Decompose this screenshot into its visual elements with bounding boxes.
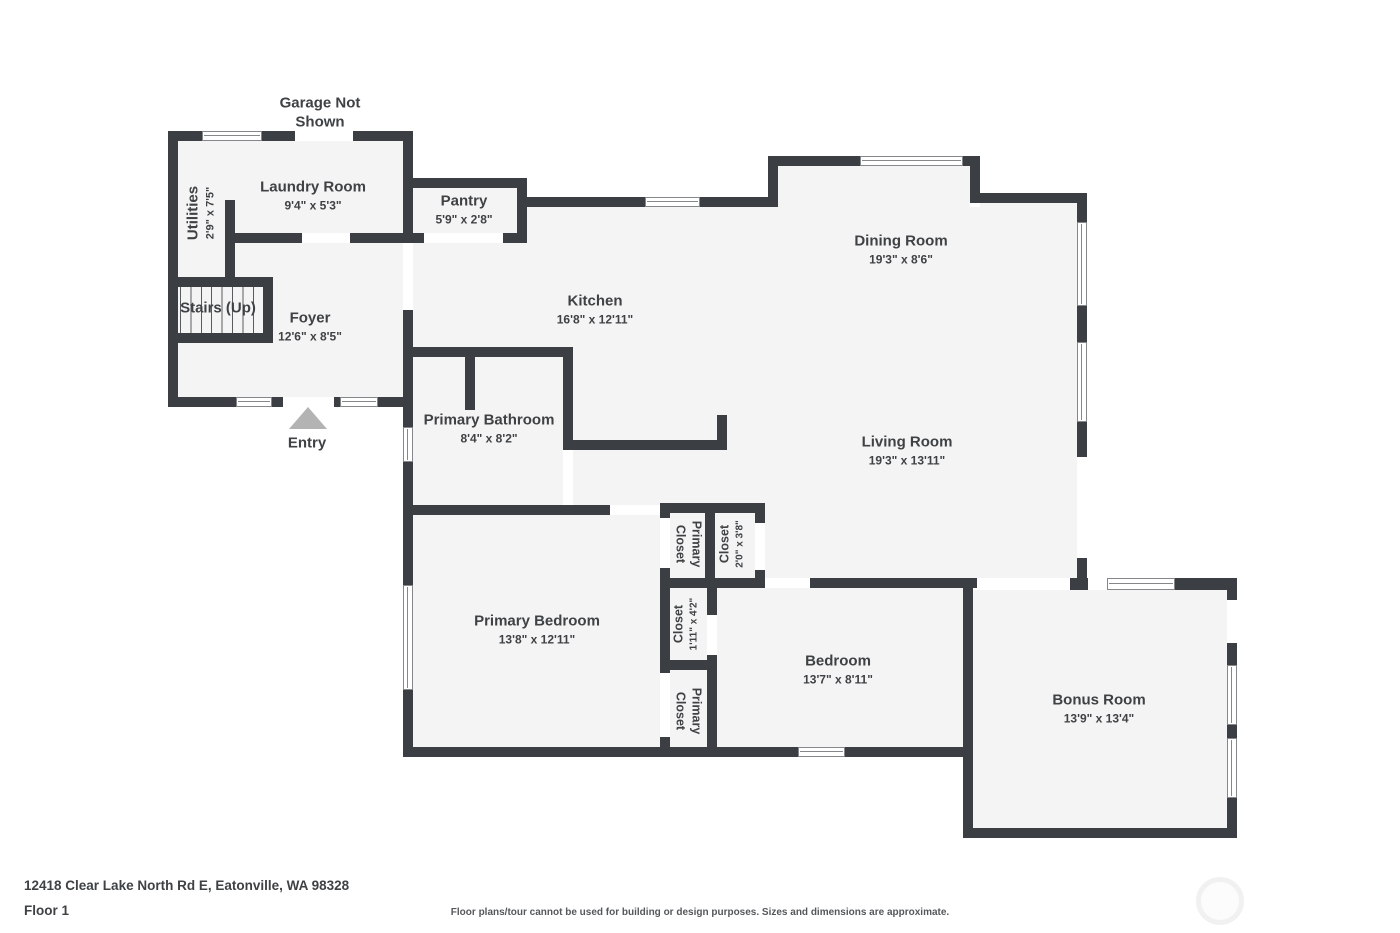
room-dims: 13'9" x 13'4" [1052, 711, 1145, 726]
wall [660, 578, 977, 588]
room-name-line1: Primary [688, 521, 704, 568]
wall [1070, 578, 1088, 590]
room-dims: 9'4" x 5'3" [260, 198, 366, 213]
floor-area [980, 203, 1077, 211]
room-dims: 19'3" x 13'11" [862, 453, 953, 468]
room-name: Primary Bedroom [474, 613, 600, 632]
room-label-closet-middle: Closet 1'11" x 4'2" [671, 598, 700, 651]
entry-label: Entry [288, 435, 326, 454]
logo-watermark-icon [1196, 877, 1244, 925]
wall [465, 357, 475, 410]
window [1227, 738, 1237, 798]
wall [168, 277, 273, 287]
room-dims: 1'11" x 4'2" [688, 598, 701, 651]
room-dims: 19'3" x 8'6" [854, 252, 947, 267]
wall [705, 503, 715, 588]
room-dims: 16'8" x 12'11" [557, 312, 633, 327]
room-label-primary-bedroom: Primary Bedroom 13'8" x 12'11" [474, 613, 600, 648]
room-name-line2: Closet [672, 688, 688, 735]
floor-number-label: Floor 1 [24, 903, 69, 918]
wall [717, 415, 727, 450]
room-label-dining: Dining Room 19'3" x 8'6" [854, 233, 947, 268]
room-label-bedroom: Bedroom 13'7" x 8'11" [803, 653, 873, 688]
door-opening [707, 615, 717, 655]
room-name-line2: Closet [672, 521, 688, 568]
room-name: Dining Room [854, 233, 947, 252]
window [1227, 665, 1237, 725]
room-label-primary-bathroom: Primary Bathroom 8'4" x 8'2" [424, 412, 555, 447]
room-name: Closet [671, 598, 687, 651]
room-name: Stairs (Up) [180, 300, 256, 319]
wall [403, 747, 717, 757]
door-opening [302, 233, 350, 243]
door-opening [295, 131, 353, 141]
room-label-pantry: Pantry 5'9" x 2'8" [435, 193, 492, 228]
disclaimer-text: Floor plans/tour cannot be used for buil… [451, 907, 949, 918]
door-opening [765, 578, 810, 588]
room-dims: 5'9" x 2'8" [435, 212, 492, 227]
door-opening [610, 505, 660, 515]
room-dims: 12'6" x 8'5" [278, 329, 342, 344]
room-name: Kitchen [557, 293, 633, 312]
room-name: Bedroom [803, 653, 873, 672]
window [403, 585, 413, 690]
door-opening [1227, 600, 1237, 643]
wall [168, 333, 273, 343]
wall [168, 131, 178, 407]
window [645, 197, 700, 207]
wall [963, 828, 1237, 838]
door-opening [424, 233, 503, 243]
room-name: Primary Bathroom [424, 412, 555, 431]
room-name: Utilities [184, 186, 203, 240]
room-name: Foyer [278, 310, 342, 329]
window [1107, 578, 1175, 590]
wall [970, 193, 1087, 203]
wall [403, 505, 610, 515]
window [403, 427, 413, 462]
room-name: Bonus Room [1052, 692, 1145, 711]
room-label-primary-closet-lower: Primary Closet [672, 688, 703, 735]
wall [563, 347, 573, 450]
wall [660, 660, 717, 670]
room-label-utilities: Utilities 2'9" x 7'5" [184, 186, 218, 240]
room-dims: 8'4" x 8'2" [424, 431, 555, 446]
wall [707, 588, 717, 757]
room-name: Pantry [435, 193, 492, 212]
room-label-bonus: Bonus Room 13'9" x 13'4" [1052, 692, 1145, 727]
floor-area [778, 166, 970, 207]
room-label-kitchen: Kitchen 16'8" x 12'11" [557, 293, 633, 328]
door-opening [660, 518, 670, 568]
door-opening [563, 450, 573, 505]
garage-note-line2: Shown [280, 113, 361, 132]
entry-text: Entry [288, 435, 326, 454]
room-dims: 13'7" x 8'11" [803, 672, 873, 687]
window [798, 747, 845, 757]
room-label-stairs: Stairs (Up) [180, 300, 256, 319]
door-opening [283, 397, 334, 407]
garage-note-line1: Garage Not [280, 94, 361, 113]
wall [567, 440, 727, 450]
address-text: 12418 Clear Lake North Rd E, Eatonville,… [24, 878, 349, 893]
room-name: Living Room [862, 434, 953, 453]
wall [412, 178, 527, 188]
door-opening [755, 523, 765, 570]
wall [403, 347, 573, 357]
wall [225, 200, 235, 287]
room-dims: 13'8" x 12'11" [474, 632, 600, 647]
window [236, 397, 272, 407]
window [340, 397, 378, 407]
door-opening [660, 673, 670, 737]
window [1077, 222, 1087, 306]
room-label-closet-upper: Closet 2'0" x 3'8" [717, 520, 746, 568]
window [1077, 342, 1087, 422]
room-label-living: Living Room 19'3" x 13'11" [862, 434, 953, 469]
window [860, 156, 963, 166]
room-name: Laundry Room [260, 179, 366, 198]
room-label-foyer: Foyer 12'6" x 8'5" [278, 310, 342, 345]
entry-arrow-icon [289, 407, 327, 429]
room-name-line1: Primary [688, 688, 704, 735]
garage-note: Garage Not Shown [280, 94, 361, 132]
window [202, 131, 262, 141]
wall [963, 578, 973, 838]
room-label-primary-closet-upper: Primary Closet [672, 521, 703, 568]
floor-plan-page: Garage Not Shown Laundry Room 9'4" x 5'3… [0, 0, 1400, 933]
room-name: Closet [717, 520, 733, 568]
room-dims: 2'9" x 7'5" [204, 186, 218, 240]
room-label-laundry: Laundry Room 9'4" x 5'3" [260, 179, 366, 214]
room-dims: 2'0" x 3'8" [734, 520, 747, 568]
